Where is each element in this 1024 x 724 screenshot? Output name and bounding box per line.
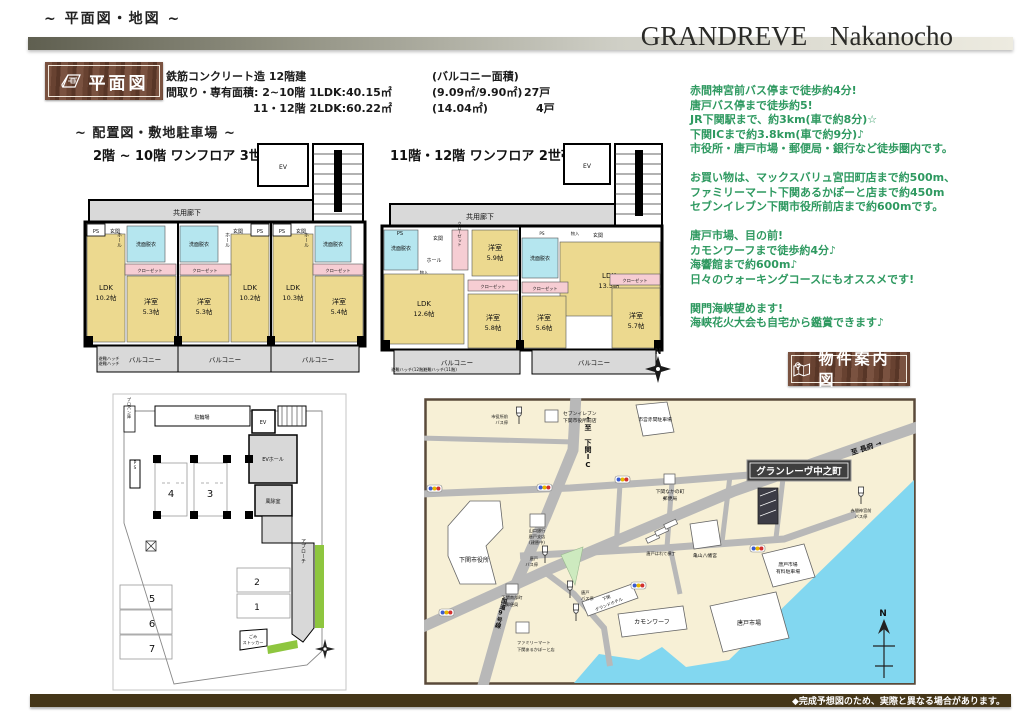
famima-label-2: 下関あるかぽーと店 [517,646,555,653]
unit3-ldk-size: 10.3帖 [283,293,304,302]
compass-n-label: N [655,347,662,356]
unit2-ldk-name: LDK [243,284,257,292]
stairs [313,144,363,232]
akama-bus-label-1: 赤間神宮前 [851,507,872,514]
traffic-light-icon [631,582,646,589]
city-hall-label: 下関市役所 [459,556,489,564]
unit3-bedroom-size: 5.4帖 [331,307,348,316]
east-closet1-label: クローゼット [532,285,557,292]
stall-6: 6 [149,619,155,630]
cityhall-bus-label-2: バス停 [495,419,508,426]
map-badge: 物件案内図 [788,352,910,386]
access-line: 海峡花火大会も自宅から鑑賞できます♪ [690,316,1016,331]
site-ps-label: PS [133,460,138,470]
area-map: グランレーヴ中之町 下関市役所 セブンイレブン 下関市役所前店 市営赤間駐車場 … [424,398,916,685]
karato-bus2-label-1: 唐戸 [581,589,589,596]
plan-b-title: 11階・12階 ワンフロア 2世帯 [390,148,574,164]
hatch-note-2: 避難ハッチ [99,360,120,367]
balcony2-label: バルコニー [209,356,241,364]
elevator-label: EV [279,164,288,171]
elevator-label-b: EV [583,163,592,170]
west-closet-label: クローゼット [480,283,505,290]
unit1-ps-label: PS [93,229,99,235]
post-north-label-2: 郵便局 [663,495,678,502]
stairs-b [615,144,662,236]
unit1-closet-label: クローゼット [137,267,162,274]
west-bedroom1-name: 洋室 [488,243,502,252]
spec-balcony-header: (バルコニー面積) [432,68,519,84]
unit1-bedroom-name: 洋室 [144,297,158,306]
unit3-wash-label: 洗面脱衣 [323,241,343,248]
access-line: お買い物は、マックスバリュ宮田町店まで約500m、 [690,171,1016,186]
floorplan-badge-inner: 平面図 [48,65,160,97]
east-bedroom2-name: 洋室 [629,311,643,320]
traffic-light-icon [750,545,765,552]
balcony3-label: バルコニー [302,356,334,364]
west-bedroom1-size: 5.9帖 [487,253,504,262]
spec-row1-units: 27戸 [524,84,550,100]
planting-strip-east [315,545,324,628]
unit1-wash-label: 洗面脱衣 [136,241,156,248]
map-compass-n: N [879,609,887,619]
west-wash-label: 洗面脱衣 [391,245,411,252]
east-bedroom1-name: 洋室 [537,313,551,322]
kamon-wharf-label: カモンワーフ [634,619,670,626]
site-plan: 駐輪場 プロパン庫 EV EVホール 風除室 アプローチ 4 3 2 1 5 [112,393,347,691]
hatch11-note: 避難ハッチ(11階) [423,366,457,373]
common-corridor-b [390,204,615,226]
spec-row1-balcony: (9.09㎡/9.90㎡) [432,84,522,100]
traffic-light-icon [439,609,454,616]
unit2-entrance-label: 玄関 [233,228,243,235]
west-ldk [384,274,464,344]
unit2-wash-label: 洗面脱衣 [189,241,209,248]
unit2-ldk-size: 10.2帖 [240,293,261,302]
floorplan-2f-10f: 2階 ~ 10階 ワンフロア 3世帯 EV 共用廊下 PS 玄関 ホール 洗面脱… [75,138,375,390]
spec-row2-balcony: (14.04㎡) [432,100,488,116]
spec-row1: 間取り・専有面積: 2~10階 1LDK:40.15㎡ [166,84,392,100]
bank-label-1: 山口銀行 [529,527,546,534]
access-line: 唐戸市場、目の前! [690,229,1016,244]
unit2-bedroom-name: 洋室 [197,297,211,306]
map-badge-label: 物件案内図 [818,348,906,390]
property-marker [758,488,778,524]
unit3-bedroom-name: 洋室 [332,297,346,306]
balcony-east-label: バルコニー [578,359,610,367]
stall-7: 7 [149,644,155,655]
bank-label-3: (建替中) [529,539,545,546]
cityhall-bus-label-1: 市役所前 [491,413,508,420]
access-line: カモンワーフまで徒歩約4分♪ [690,244,1016,259]
akama-bus-label-2: バス停 [855,513,868,520]
east-entrance-label: 玄関 [593,232,603,239]
entry-path [262,516,292,543]
route-to-ic-label: ↑至 下関IC [584,416,592,469]
stall-1: 1 [254,603,260,613]
west-ldk-size: 12.6帖 [414,309,435,318]
unit2-hall-label: ホール [224,233,230,248]
west-entry-closet-label: クローゼット [458,221,463,247]
access-line: 赤間神宮前バス停まで徒歩約4分! [690,84,1016,99]
corridor-label: 共用廊下 [173,208,201,217]
access-line: ファミリーマート下関あるかぽーと店まで約450m [690,186,1016,201]
post-south-label-2: 郵便局 [506,601,519,608]
bank-label-2: 唐戸支店 [529,533,546,540]
map-badge-inner: 物件案内図 [791,355,907,383]
stall-2: 2 [254,578,260,588]
property-label: グランレーヴ中之町 [756,466,842,478]
traffic-light-icon [537,484,552,491]
unit1-hall-label: ホール [116,233,122,248]
shrine-label: 亀山八幡宮 [693,552,717,559]
corridor-label-b: 共用廊下 [466,212,494,221]
approach-label: アプローチ [300,539,306,564]
traffic-light-icon [615,476,630,483]
stall-4: 4 [168,489,174,500]
floorplan-badge: 平面図 [45,62,163,100]
unit2-closet-label: クローゼット [192,267,217,274]
plan-a-title: 2階 ~ 10階 ワンフロア 3世帯 [93,148,275,164]
unit2-bedroom-size: 5.3帖 [196,307,213,316]
footer-disclaimer: ◆完成予想図のため、実際と異なる場合があります。 [792,694,1011,707]
karato-bus1-label-2: バス停 [525,561,538,568]
footer-disclaimer-bar: ◆完成予想図のため、実際と異なる場合があります。 [30,694,1011,707]
access-line: セブンイレブン下関市役所前店まで約600mです。 [690,200,1016,215]
brand-title: GRANDREVE Nakanocho [641,21,953,52]
karato-parking-label-1: 唐戸市場 [778,561,797,568]
unit3-hall-label: ホール [303,233,309,248]
west-bedroom1 [472,230,518,276]
west-ps-label: PS [397,231,403,237]
unit3-ps-label: PS [279,229,285,235]
traffic-light-icon [427,485,442,492]
west-bedroom2-size: 5.8帖 [485,323,502,332]
east-wash-label: 洗面脱衣 [530,255,550,262]
yokocho-label: 唐戸はれて横丁 [646,550,675,557]
east-closet2-label: クローゼット [622,277,647,284]
site-elevator-label: EV [260,420,267,426]
stall-3: 3 [207,489,213,500]
east-ps-label: PS [539,231,545,236]
access-line: 日々のウォーキングコースにもオススメです! [690,273,1016,288]
west-hall-label: ホール [426,258,441,264]
corner-note: ~ 平面図・地図 ~ [44,8,181,28]
access-line [690,215,1016,230]
west-bedroom2-name: 洋室 [486,313,500,322]
floorplan-11f-12f: 11階・12階 ワンフロア 2世帯 EV 共用廊下 洗面脱衣 PS 玄関 クロー… [372,138,672,390]
spec-construction: 鉄筋コンクリート造 12階建 [166,68,306,84]
karato-market-label: 唐戸市場 [737,619,761,627]
access-notes: 赤間神宮前バス停まで徒歩約4分! 唐戸バス停まで徒歩約5! JR下関駅まで、約3… [690,84,1016,331]
spec-row2-units: 4戸 [536,100,555,116]
balcony1-label: バルコニー [129,356,161,364]
unit2-ps-label: PS [257,229,263,235]
balcony-west-label: バルコニー [441,359,473,367]
windbreak-label: 風除室 [265,498,280,505]
east-bedroom2-size: 5.7帖 [628,321,645,330]
property-label-box: グランレーヴ中之町 [747,460,851,481]
karato-bus1-label-1: 唐戸 [530,555,538,562]
east-monoire-label: 物入 [571,230,580,237]
flyer-page: ~ 平面図・地図 ~ GRANDREVE Nakanocho 平面図 鉄筋コンク… [0,0,1024,724]
blueprint-icon [60,72,82,90]
common-corridor [89,200,313,222]
access-line: 唐戸バス停まで徒歩約5! [690,99,1016,114]
spec-row2: 11・12階 2LDK:60.22㎡ [253,100,392,116]
west-entrance-label: 玄関 [433,235,443,242]
stall-5: 5 [149,594,155,605]
access-line: 関門海峡望めます! [690,302,1016,317]
access-line [690,157,1016,172]
unit1-bedroom-size: 5.3帖 [143,307,160,316]
post-north-label-1: 下関なかの町 [656,488,685,495]
access-line: 海響館まで約600m♪ [690,258,1016,273]
access-line: JR下関駅まで、約3km(車で約8分)☆ [690,113,1016,128]
access-line: 市役所・唐戸市場・郵便局・銀行など徒歩圏内です。 [690,142,1016,157]
karato-bus2-label-2: バス停 [581,595,594,602]
city-parking-label: 市営赤間駐車場 [638,416,672,423]
garbage-label-1: ごみ [249,633,257,640]
east-bedroom1 [522,296,566,348]
access-line [690,287,1016,302]
map-pin-icon [792,361,811,378]
site-stairs [278,406,306,426]
ev-hall-label: EVホール [262,457,284,463]
propane-label: プロパン庫 [127,397,132,420]
unit3-ldk-name: LDK [286,284,300,292]
floorplan-badge-label: 平面図 [89,69,149,94]
unit1-ldk-name: LDK [99,284,113,292]
karato-parking-label-2: 有料駐車場 [776,568,800,575]
hatch12-note: 避難ハッチ(12階) [391,366,425,373]
unit1-ldk-size: 10.2帖 [96,293,117,302]
access-line: 下関ICまで約3.8km(車で約9分)♪ [690,128,1016,143]
west-ldk-name: LDK [417,300,431,308]
unit3-closet-label: クローゼット [325,267,350,274]
bicycle-parking-label: 駐輪場 [194,414,209,421]
east-bedroom1-size: 5.6帖 [536,323,553,332]
